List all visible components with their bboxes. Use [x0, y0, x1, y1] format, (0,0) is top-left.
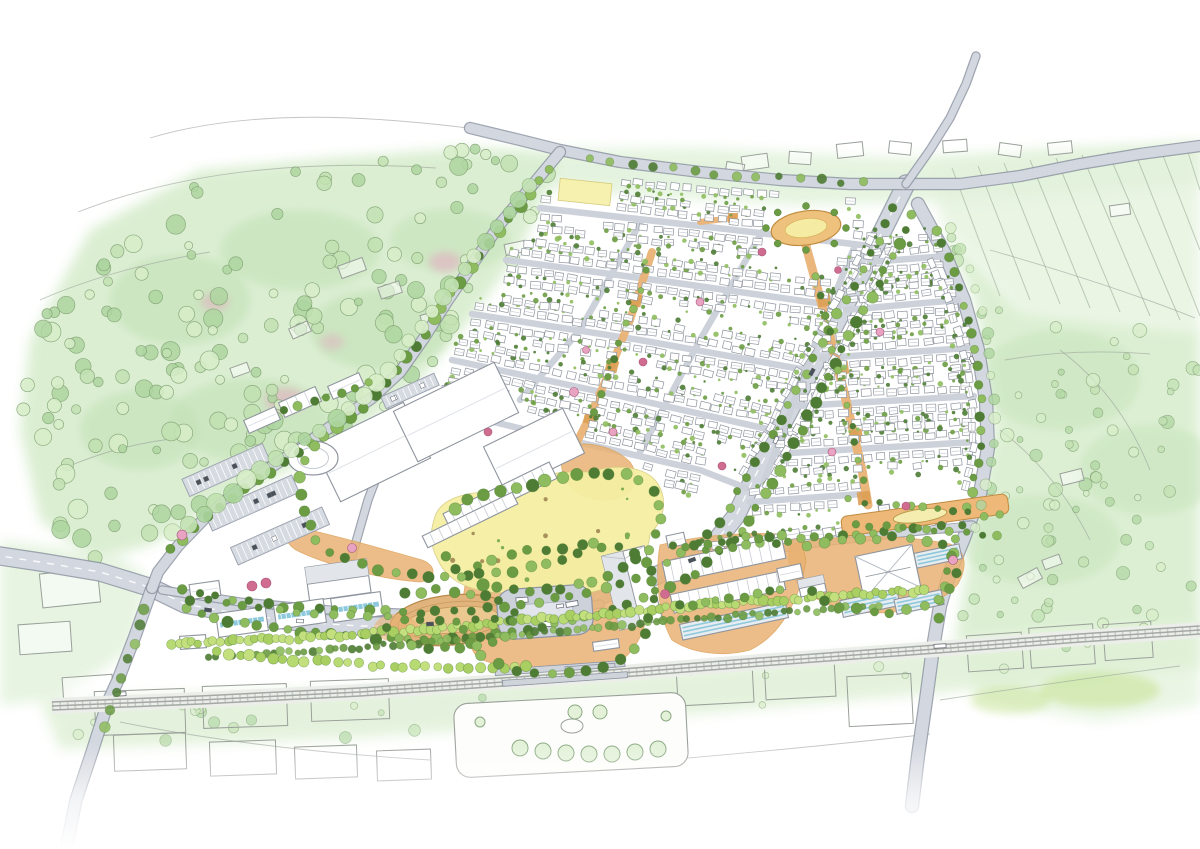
tree — [889, 252, 896, 259]
tree — [862, 500, 868, 506]
house — [610, 252, 619, 259]
tree — [300, 649, 307, 656]
tree — [440, 572, 449, 581]
flowering-tree — [696, 298, 704, 306]
tree — [680, 574, 691, 585]
house — [715, 304, 726, 312]
tree — [112, 688, 121, 697]
tree — [256, 652, 266, 662]
tree — [691, 570, 700, 579]
house — [873, 343, 883, 350]
house — [875, 423, 885, 431]
tree — [392, 568, 400, 576]
tree — [731, 536, 739, 544]
tree — [968, 487, 978, 497]
tree — [299, 657, 309, 667]
house — [504, 360, 514, 368]
tree — [718, 538, 725, 545]
tree — [944, 584, 954, 594]
house — [744, 348, 755, 357]
tree — [356, 646, 363, 653]
tree — [682, 543, 690, 551]
tree — [615, 543, 623, 551]
tree — [733, 487, 740, 494]
tree — [415, 320, 429, 334]
house — [599, 310, 609, 318]
house — [566, 371, 576, 380]
tree — [295, 650, 301, 656]
sketched-building — [1047, 141, 1072, 155]
tree — [898, 588, 906, 596]
tree — [643, 267, 650, 274]
tree — [764, 609, 771, 616]
tree — [855, 457, 861, 463]
tree — [344, 658, 352, 666]
tree — [867, 292, 878, 303]
tree — [842, 295, 851, 304]
house — [814, 456, 823, 463]
flowering-tree — [828, 448, 836, 456]
house — [714, 234, 725, 242]
house — [534, 331, 545, 338]
tree — [709, 171, 718, 180]
tree — [819, 537, 830, 548]
house — [546, 398, 556, 406]
tree — [601, 582, 612, 593]
tree — [919, 585, 929, 595]
tree — [631, 574, 640, 583]
tree — [373, 643, 380, 650]
tree — [590, 409, 598, 417]
wash-blob — [1040, 672, 1160, 708]
tree — [166, 544, 175, 553]
house — [804, 307, 813, 314]
tree — [400, 616, 408, 624]
tree — [243, 649, 254, 660]
tree — [255, 604, 262, 611]
house — [545, 344, 554, 352]
flowering-tree — [639, 358, 647, 366]
tree — [296, 489, 307, 500]
tree — [587, 577, 597, 587]
tree — [654, 500, 664, 510]
tree — [965, 317, 973, 325]
tree — [268, 653, 279, 664]
house — [887, 434, 897, 441]
tree — [878, 590, 887, 599]
tree — [509, 632, 517, 640]
house — [722, 341, 732, 350]
tree — [742, 474, 750, 482]
tree — [951, 535, 959, 543]
tree — [970, 474, 977, 481]
tree — [767, 478, 778, 489]
tree — [885, 609, 894, 618]
tree — [520, 661, 531, 672]
house — [898, 359, 907, 367]
tree — [252, 620, 262, 630]
tree — [852, 520, 860, 528]
tree — [634, 476, 643, 485]
tree — [628, 160, 637, 169]
tree — [435, 616, 444, 625]
house — [884, 311, 895, 319]
tree — [449, 587, 460, 598]
tree — [280, 406, 288, 414]
tree — [636, 620, 644, 628]
tree — [551, 593, 560, 602]
house — [507, 265, 516, 272]
tree — [978, 443, 985, 450]
tree — [751, 173, 759, 181]
house — [700, 401, 711, 410]
house — [630, 196, 641, 204]
tree — [586, 613, 593, 620]
house — [491, 355, 501, 364]
tree — [443, 664, 453, 674]
house — [552, 227, 562, 234]
house — [633, 266, 643, 274]
tree — [980, 479, 991, 490]
tree — [310, 397, 319, 406]
tree — [761, 488, 772, 499]
tree — [650, 595, 658, 603]
tree — [772, 539, 780, 547]
tree — [923, 525, 931, 533]
tree — [797, 534, 806, 543]
tree — [194, 640, 202, 648]
tree — [986, 457, 996, 467]
house — [580, 363, 590, 371]
tree — [906, 534, 914, 542]
house — [593, 279, 602, 285]
tree — [558, 555, 567, 564]
house — [863, 454, 872, 462]
house — [875, 436, 884, 443]
tree — [750, 457, 760, 467]
house — [596, 260, 606, 268]
house — [796, 277, 805, 283]
sketched-building — [789, 151, 812, 165]
level-crossing — [934, 644, 946, 649]
tree — [788, 437, 800, 449]
tree — [701, 557, 712, 568]
tree — [477, 489, 489, 501]
house — [768, 368, 778, 377]
tree — [493, 658, 504, 669]
tree — [310, 610, 318, 618]
house — [670, 182, 680, 190]
tree — [589, 468, 600, 479]
tree — [688, 601, 697, 610]
house — [888, 369, 899, 376]
tree — [900, 524, 907, 531]
tree — [363, 611, 372, 620]
tree — [563, 627, 572, 636]
tree — [749, 610, 755, 616]
tree — [742, 532, 751, 541]
tree — [420, 661, 429, 670]
house — [910, 264, 920, 272]
tree — [669, 542, 677, 550]
tree — [943, 568, 950, 575]
tree — [466, 590, 475, 599]
house — [615, 382, 624, 390]
tree — [598, 662, 609, 673]
tree — [694, 615, 700, 621]
tree — [347, 611, 355, 619]
tree — [185, 596, 195, 606]
tree — [321, 655, 331, 665]
tree — [581, 666, 591, 676]
tree — [771, 610, 778, 617]
tree — [240, 618, 249, 627]
tree — [809, 354, 817, 362]
house — [886, 322, 896, 329]
street — [798, 396, 974, 406]
flowering-tree — [348, 544, 357, 553]
tree — [659, 616, 668, 625]
sketched-building — [1109, 203, 1130, 217]
tree — [651, 587, 658, 594]
tree — [996, 511, 1004, 519]
tree — [512, 666, 522, 676]
tree — [784, 538, 792, 546]
car — [556, 604, 563, 609]
house — [622, 439, 632, 447]
tree — [879, 266, 887, 274]
tree — [526, 561, 537, 572]
house — [951, 403, 961, 410]
tree — [860, 266, 867, 273]
tree — [574, 626, 581, 633]
tree — [337, 389, 346, 398]
house — [570, 257, 579, 265]
house — [853, 465, 862, 472]
tree — [775, 465, 787, 477]
tree — [449, 503, 462, 516]
tree — [982, 327, 994, 339]
tree — [492, 568, 501, 577]
house — [741, 209, 750, 217]
tree — [212, 647, 221, 656]
tree — [843, 330, 853, 340]
tree — [196, 506, 212, 522]
tree — [715, 615, 722, 622]
house — [635, 406, 646, 414]
tree — [511, 483, 522, 494]
house — [529, 363, 540, 370]
tree — [376, 661, 384, 669]
tree — [457, 573, 466, 582]
tree — [284, 625, 292, 633]
tree — [434, 663, 442, 671]
tree — [623, 320, 630, 327]
tree — [704, 540, 712, 548]
house — [713, 394, 724, 403]
tree — [443, 635, 452, 644]
tree — [667, 616, 675, 624]
house — [733, 280, 743, 288]
tree — [945, 223, 956, 234]
tree — [630, 305, 638, 313]
tree — [407, 569, 417, 579]
tree — [984, 348, 995, 359]
house — [581, 338, 592, 347]
tree — [603, 469, 614, 480]
house — [790, 317, 799, 324]
tree — [966, 265, 974, 273]
tree — [526, 479, 539, 492]
house — [536, 239, 547, 248]
tree — [834, 603, 844, 613]
house — [682, 427, 693, 435]
house — [839, 456, 849, 463]
tree — [810, 532, 819, 541]
tree — [462, 494, 473, 505]
tree — [850, 282, 859, 291]
tree — [937, 521, 946, 530]
tree — [888, 203, 897, 212]
tree — [724, 594, 733, 603]
tree — [453, 636, 461, 644]
tree — [268, 450, 284, 466]
tree — [635, 605, 645, 615]
tree — [410, 659, 421, 670]
house — [641, 206, 652, 215]
tree — [312, 424, 326, 438]
tree — [876, 237, 884, 245]
tree — [938, 540, 947, 549]
house — [897, 338, 906, 346]
tree — [850, 316, 862, 328]
tree — [503, 206, 516, 219]
tree — [728, 543, 737, 552]
car — [204, 608, 211, 612]
tree — [701, 615, 707, 621]
tree — [542, 584, 553, 595]
tree — [978, 395, 986, 403]
house — [589, 377, 600, 386]
tree — [548, 670, 556, 678]
house — [779, 304, 789, 312]
house — [923, 328, 932, 335]
house — [911, 309, 921, 316]
house — [687, 399, 697, 407]
tree — [827, 328, 834, 335]
house — [860, 435, 871, 443]
tree — [744, 516, 755, 527]
flowering-tree — [902, 502, 910, 510]
tree — [752, 504, 759, 511]
house — [754, 301, 764, 310]
tree — [475, 650, 486, 661]
tree — [196, 589, 204, 597]
tree — [881, 219, 890, 228]
house — [682, 272, 693, 280]
tree — [467, 249, 481, 263]
tree — [557, 544, 568, 555]
tree — [223, 649, 234, 660]
tree — [958, 521, 966, 529]
wash-blob — [429, 252, 461, 272]
house — [765, 302, 776, 311]
tree — [739, 611, 748, 620]
tree — [370, 627, 377, 634]
tree — [300, 456, 309, 465]
house — [876, 452, 885, 459]
house — [518, 267, 527, 274]
tree — [949, 507, 957, 515]
tree — [641, 557, 652, 568]
tree — [989, 394, 1000, 405]
tree — [476, 633, 482, 639]
tree — [740, 593, 749, 602]
house — [755, 368, 766, 376]
tree — [516, 600, 525, 609]
site-plan-illustration — [0, 0, 1200, 849]
tree — [643, 613, 653, 623]
house — [933, 336, 944, 343]
flowering-tree — [758, 248, 766, 256]
tree — [238, 601, 247, 610]
tree — [656, 514, 666, 524]
tree — [944, 253, 953, 262]
tree — [776, 586, 784, 594]
tree — [348, 645, 356, 653]
tree — [326, 548, 334, 556]
tree — [784, 401, 791, 408]
house — [688, 241, 698, 249]
tree — [819, 596, 829, 606]
tree — [423, 571, 434, 582]
flowering-tree — [570, 388, 579, 397]
tree — [828, 605, 835, 612]
tree — [474, 568, 484, 578]
tree — [920, 601, 929, 610]
flowering-tree — [247, 581, 257, 591]
sketched-building — [888, 141, 911, 155]
tree — [340, 644, 348, 652]
tree — [669, 163, 677, 171]
tree — [368, 662, 377, 671]
tree — [965, 509, 971, 515]
tree — [907, 210, 916, 219]
house — [670, 353, 679, 361]
tree — [416, 616, 424, 624]
house — [785, 343, 795, 352]
tree — [382, 623, 391, 632]
tree — [311, 536, 320, 545]
house — [559, 255, 569, 263]
house — [683, 184, 692, 191]
house — [910, 247, 919, 254]
tree — [534, 598, 544, 608]
tree — [309, 441, 319, 451]
tree — [801, 410, 812, 421]
tree — [817, 292, 824, 299]
tree — [472, 641, 482, 651]
tree — [299, 506, 310, 517]
tree — [477, 233, 494, 250]
house — [708, 339, 718, 347]
tree — [298, 433, 311, 446]
tree — [525, 587, 534, 596]
tree — [821, 312, 829, 320]
tree — [399, 608, 407, 616]
tree — [715, 518, 725, 528]
tree — [492, 582, 502, 592]
